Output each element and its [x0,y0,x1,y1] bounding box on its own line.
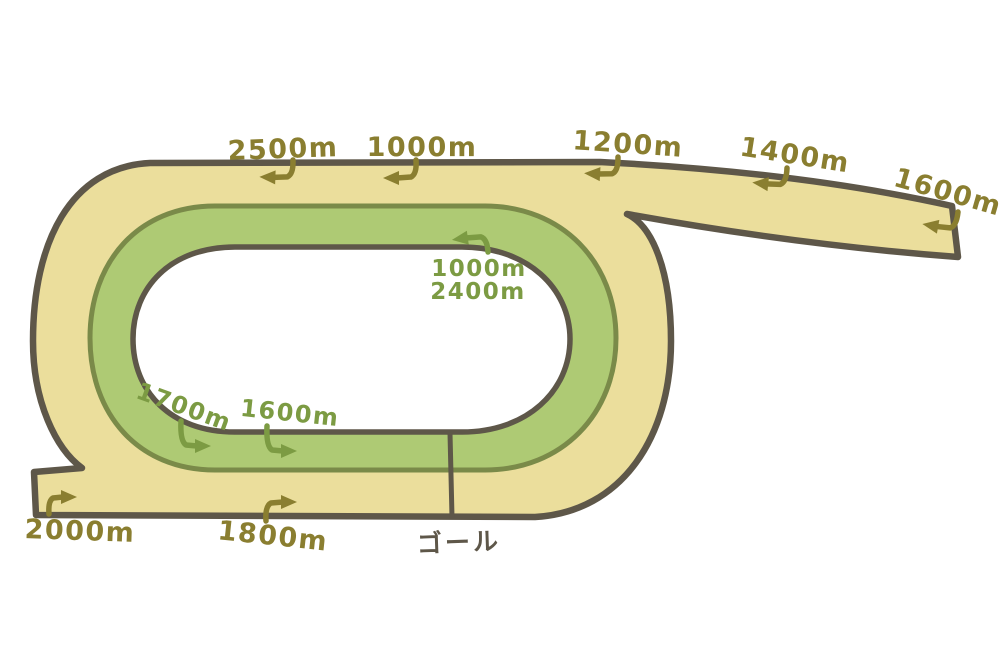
finish-line [450,433,452,517]
distance-label-2000m: 2000m [24,514,136,549]
distance-label-1200m: 1200m [572,125,685,164]
racecourse-illustration: 2500m 1000m 1200m 1400m 1600m [0,0,1000,650]
distance-label-1800m: 1800m [216,515,329,557]
finish-label: ゴール [416,527,501,559]
distance-label-1000m-outer: 1000m [367,132,478,163]
distance-label-2500m: 2500m [227,132,339,167]
distance-label-2400m-turf: 2400m [430,279,525,305]
racecourse-svg: 2500m 1000m 1200m 1400m 1600m [0,0,1000,650]
